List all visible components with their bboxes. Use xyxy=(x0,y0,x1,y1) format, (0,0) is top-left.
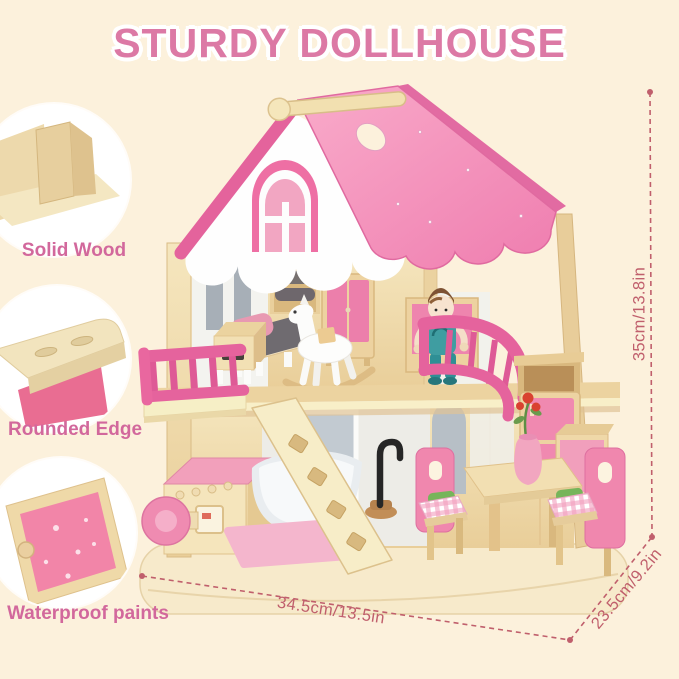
height-dimension-line xyxy=(650,92,652,536)
feature-label-rounded-edge: Rounded Edge xyxy=(8,419,142,441)
feature-label-waterproof-paints: Waterproof paints xyxy=(7,603,169,625)
height-dimension-label: 35cm/13.8in xyxy=(631,267,650,361)
roof xyxy=(181,84,566,293)
page-title: STURDY DOLLHOUSE xyxy=(0,20,679,67)
wall-shelf xyxy=(514,352,584,396)
gable-window xyxy=(252,160,318,252)
feature-label-solid-wood: Solid Wood xyxy=(22,240,126,262)
product-image: STURDY DOLLHOUSE Solid Wood Rounded Edge xyxy=(0,0,679,679)
left-balcony xyxy=(138,340,250,423)
